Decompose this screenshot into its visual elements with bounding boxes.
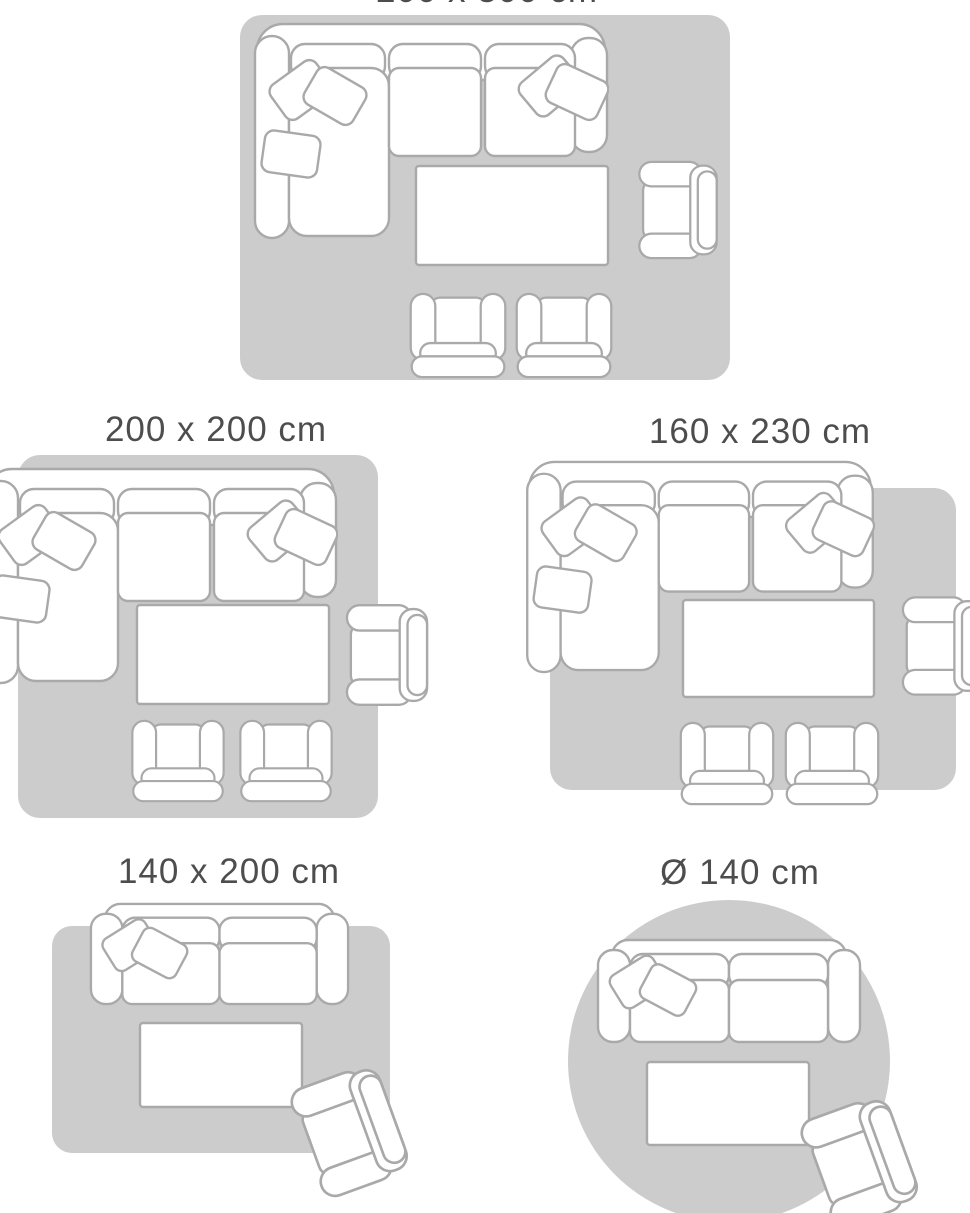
armchair (517, 294, 612, 377)
armchair (132, 721, 223, 801)
two-seater-sofa (91, 904, 348, 1004)
coffee-table (647, 1062, 809, 1145)
side-armchair (639, 162, 716, 258)
side-armchair (903, 597, 970, 694)
coffee-table (416, 166, 608, 265)
floorplan-canvas (0, 0, 970, 1213)
coffee-table (137, 605, 329, 704)
rug-size-guide: 200 x 300 cm 200 x 200 cm 160 x 230 cm 1… (0, 0, 970, 1213)
diagram-circle-140 (568, 900, 922, 1213)
diagram-200x200 (0, 455, 427, 818)
armchair (681, 723, 773, 804)
diagram-160x230 (527, 462, 970, 804)
armchair (240, 721, 331, 801)
diagram-200x300 (240, 15, 730, 380)
armchair (411, 294, 506, 377)
diagram-140x200 (52, 904, 412, 1200)
two-seater-sofa (598, 940, 860, 1042)
side-armchair (347, 605, 427, 705)
coffee-table (140, 1023, 302, 1107)
armchair (786, 723, 878, 804)
coffee-table (683, 600, 874, 697)
